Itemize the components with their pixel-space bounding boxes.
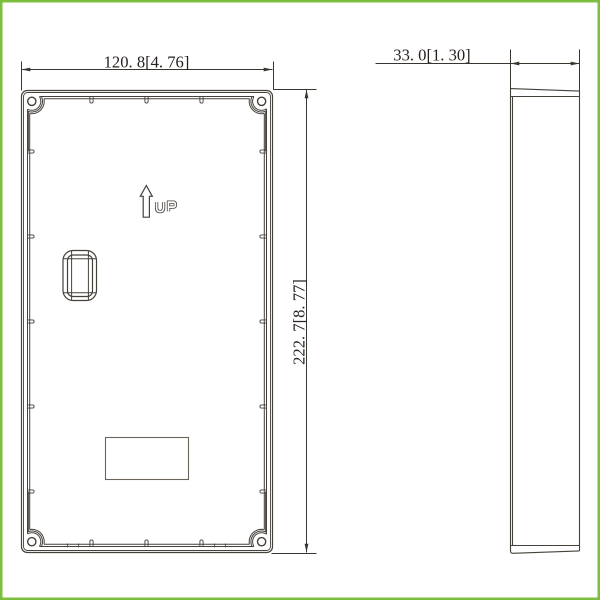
svg-text:120. 8[4. 76]: 120. 8[4. 76] [104,53,190,72]
svg-text:33. 0[1. 30]: 33. 0[1. 30] [393,46,470,65]
svg-text:222. 7[8. 77]: 222. 7[8. 77] [290,279,309,365]
